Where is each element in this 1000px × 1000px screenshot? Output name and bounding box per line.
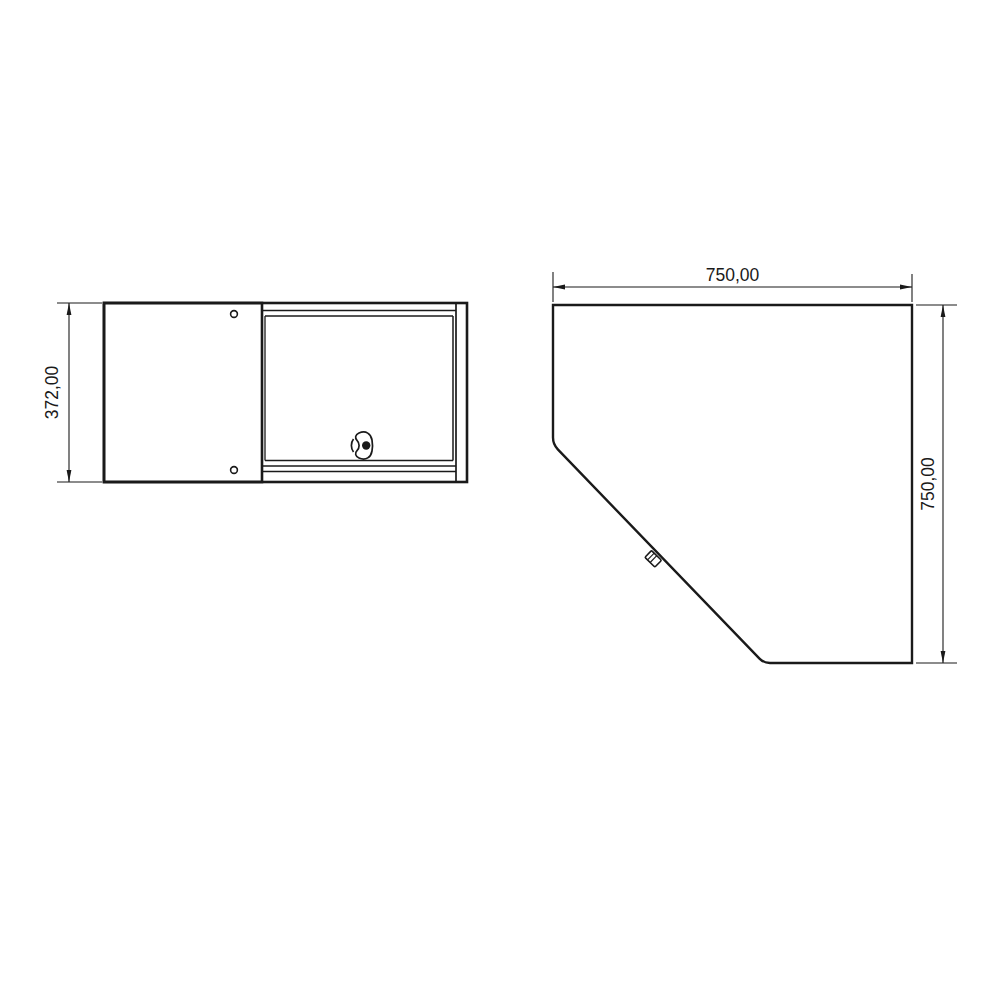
arrowhead xyxy=(553,285,565,290)
height-dimension: 372,00 xyxy=(42,303,102,482)
depth-dimension: 750,00 xyxy=(916,305,957,663)
door-handle-icon xyxy=(351,432,372,459)
arrowhead xyxy=(941,651,946,663)
left-door-panel xyxy=(104,303,262,482)
dimension-label: 750,00 xyxy=(918,457,938,511)
screw-hole-icon xyxy=(231,467,238,474)
arrowhead xyxy=(941,305,946,317)
top-view: 750,00 750,00 xyxy=(553,265,957,663)
screw-hole-icon xyxy=(231,311,238,318)
arrowhead xyxy=(67,303,72,315)
dimension-label: 372,00 xyxy=(42,365,62,419)
dimension-label: 750,00 xyxy=(706,265,760,285)
cabinet-top-outline xyxy=(553,305,912,663)
cabinet-body-outline xyxy=(104,303,467,482)
drawing-canvas: 372,00 750,00 xyxy=(0,0,1000,1000)
arrowhead xyxy=(900,285,912,290)
width-dimension: 750,00 xyxy=(553,265,912,302)
arrowhead xyxy=(67,470,72,482)
front-view: 372,00 xyxy=(42,303,467,482)
technical-drawing: 372,00 750,00 xyxy=(0,0,1000,1000)
